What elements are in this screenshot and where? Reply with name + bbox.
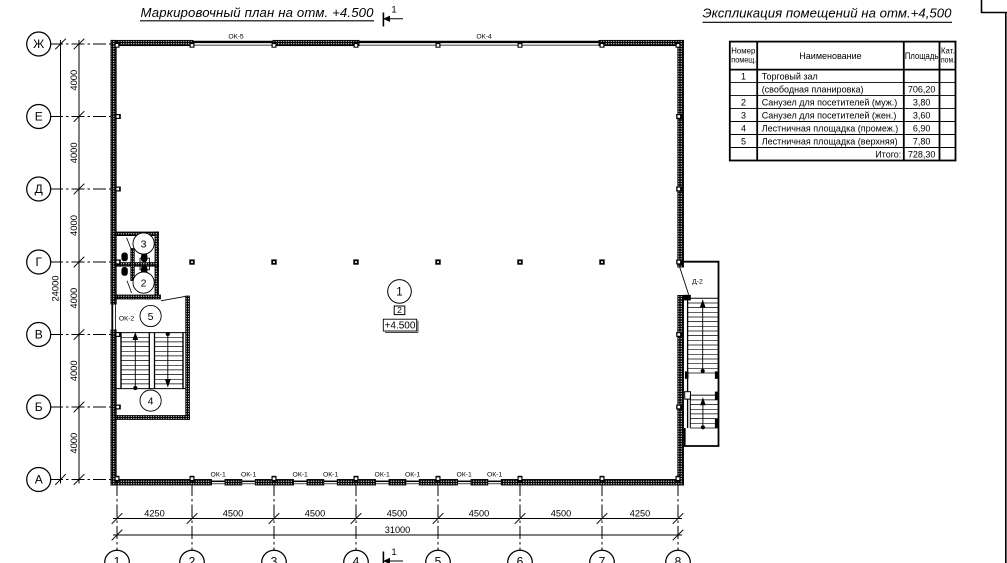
svg-text:пом.: пом. (941, 55, 955, 65)
svg-text:Д-2: Д-2 (692, 279, 703, 286)
svg-text:ОК-1: ОК-1 (457, 472, 473, 479)
svg-text:Лестничная площадка (верхняя): Лестничная площадка (верхняя) (762, 136, 898, 146)
svg-text:31000: 31000 (385, 525, 411, 535)
svg-text:Б: Б (35, 400, 43, 414)
svg-text:3: 3 (271, 555, 278, 563)
svg-text:помещ.: помещ. (731, 55, 756, 65)
svg-text:ОК-5: ОК-5 (228, 34, 244, 41)
svg-text:706,20: 706,20 (908, 84, 936, 94)
svg-text:4500: 4500 (387, 508, 407, 518)
svg-text:4: 4 (353, 555, 360, 563)
svg-text:Торговый зал: Торговый зал (762, 71, 818, 81)
svg-text:4: 4 (741, 123, 746, 133)
svg-text:1: 1 (396, 287, 402, 299)
svg-text:2: 2 (141, 278, 147, 290)
svg-text:Площадь: Площадь (905, 51, 939, 61)
svg-text:6,90: 6,90 (913, 123, 931, 133)
svg-text:2: 2 (397, 305, 402, 315)
svg-text:Д: Д (35, 182, 43, 196)
svg-text:Наименование: Наименование (799, 51, 861, 61)
svg-text:А: А (35, 473, 43, 487)
svg-text:Санузел для посетителей (муж.): Санузел для посетителей (муж.) (762, 97, 898, 107)
svg-text:5: 5 (741, 136, 746, 146)
svg-text:Е: Е (35, 110, 43, 124)
svg-text:3: 3 (141, 238, 147, 250)
svg-text:728,30: 728,30 (908, 149, 936, 159)
svg-text:6: 6 (517, 555, 524, 563)
svg-text:4500: 4500 (469, 508, 489, 518)
svg-text:3,80: 3,80 (913, 97, 931, 107)
svg-text:ОК-1: ОК-1 (293, 472, 309, 479)
svg-text:4500: 4500 (305, 508, 325, 518)
svg-text:4000: 4000 (68, 70, 79, 91)
svg-text:5: 5 (148, 311, 154, 323)
svg-text:В: В (35, 328, 43, 342)
svg-text:Экспликация помещений на отм.+: Экспликация помещений на отм.+4,500 (703, 6, 953, 21)
svg-text:ОК-1: ОК-1 (323, 472, 339, 479)
svg-text:1: 1 (391, 547, 396, 558)
svg-text:1: 1 (391, 5, 396, 16)
svg-text:+4.500: +4.500 (385, 321, 416, 332)
svg-text:4250: 4250 (630, 508, 650, 518)
svg-text:3,60: 3,60 (913, 110, 931, 120)
svg-text:Санузел для посетителей (жен.): Санузел для посетителей (жен.) (762, 110, 897, 120)
svg-text:7,80: 7,80 (913, 136, 931, 146)
svg-text:1: 1 (114, 555, 121, 563)
svg-text:4: 4 (148, 396, 154, 408)
svg-text:Г: Г (35, 255, 42, 269)
svg-text:Лестничная площадка (промеж.): Лестничная площадка (промеж.) (762, 123, 899, 133)
svg-text:ОК-1: ОК-1 (405, 472, 421, 479)
svg-text:Ж: Ж (33, 37, 44, 51)
svg-text:ОК-1: ОК-1 (241, 472, 257, 479)
svg-text:ОК-2: ОК-2 (119, 316, 135, 323)
svg-text:(свободная планировка): (свободная планировка) (762, 84, 864, 94)
svg-text:3: 3 (741, 110, 746, 120)
svg-text:ОК-1: ОК-1 (487, 472, 503, 479)
svg-text:4500: 4500 (223, 508, 243, 518)
svg-text:4500: 4500 (551, 508, 571, 518)
svg-text:2: 2 (741, 97, 746, 107)
svg-text:1: 1 (741, 71, 746, 81)
svg-text:5: 5 (435, 555, 442, 563)
svg-text:ОК-1: ОК-1 (211, 472, 227, 479)
svg-text:4000: 4000 (68, 360, 79, 381)
svg-text:Маркировочный план на отм. +4.: Маркировочный план на отм. +4.500 (141, 5, 375, 20)
svg-text:4000: 4000 (68, 288, 79, 309)
svg-text:24000: 24000 (49, 275, 60, 301)
svg-text:8: 8 (675, 555, 682, 563)
svg-text:2: 2 (189, 555, 196, 563)
svg-text:ОК-1: ОК-1 (375, 472, 391, 479)
svg-text:4000: 4000 (68, 142, 79, 163)
svg-text:Итого:: Итого: (875, 149, 901, 159)
svg-text:ОК-4: ОК-4 (476, 34, 492, 41)
svg-text:4000: 4000 (68, 433, 79, 454)
svg-text:7: 7 (599, 555, 606, 563)
svg-text:4000: 4000 (68, 215, 79, 236)
svg-text:4250: 4250 (144, 508, 164, 518)
